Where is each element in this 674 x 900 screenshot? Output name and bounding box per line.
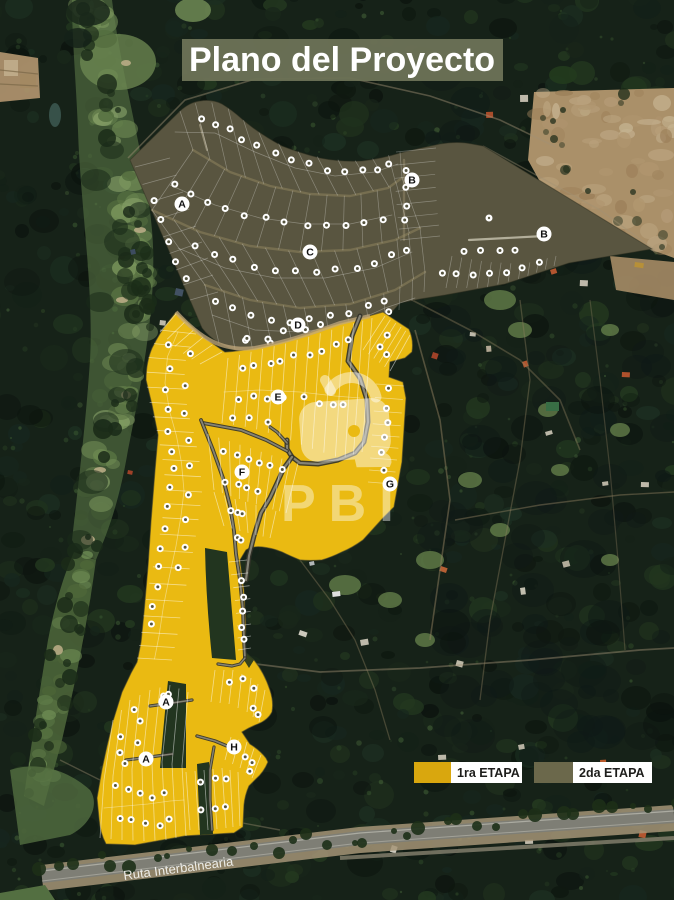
svg-text:2da ETAPA: 2da ETAPA — [579, 766, 645, 780]
svg-text:B: B — [540, 229, 548, 241]
svg-text:B: B — [408, 175, 416, 187]
svg-text:H: H — [230, 742, 238, 754]
svg-text:1ra ETAPA: 1ra ETAPA — [457, 766, 520, 780]
svg-text:A: A — [142, 754, 150, 766]
svg-text:Plano del Proyecto: Plano del Proyecto — [189, 41, 495, 79]
svg-text:C: C — [306, 247, 314, 259]
svg-text:E: E — [274, 392, 281, 404]
svg-text:A: A — [162, 697, 170, 709]
svg-text:F: F — [239, 467, 246, 479]
svg-text:A: A — [178, 199, 186, 211]
svg-text:G: G — [386, 479, 394, 491]
svg-text:D: D — [294, 320, 302, 332]
